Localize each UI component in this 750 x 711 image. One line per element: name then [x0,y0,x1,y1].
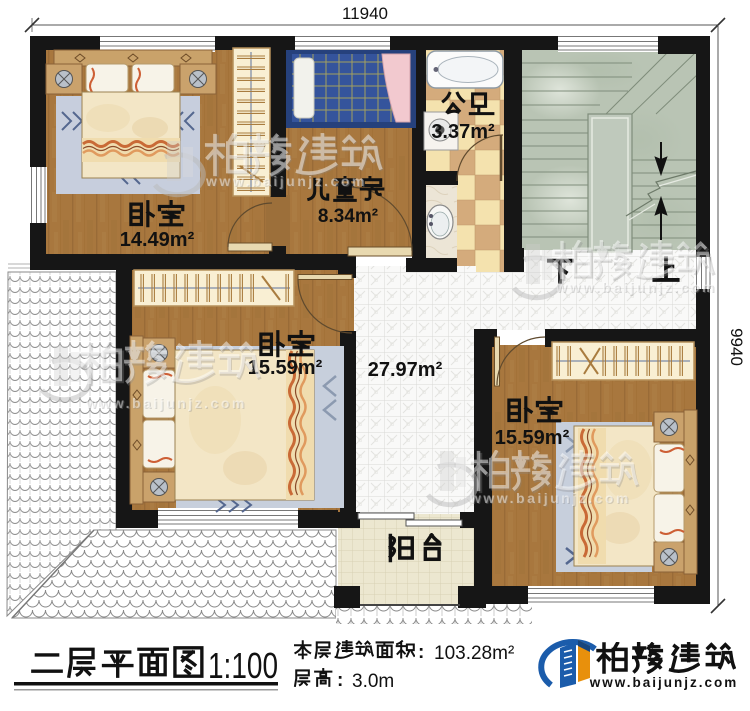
svg-text::: : [337,670,343,691]
svg-text:3.0m: 3.0m [352,671,394,692]
svg-text:15.59m²: 15.59m² [495,427,570,449]
svg-text:1:100: 1:100 [208,645,278,686]
svg-text:27.97m²: 27.97m² [368,359,443,381]
svg-text::: : [418,642,424,663]
svg-text:103.28m²: 103.28m² [434,643,514,664]
svg-text:www.baijunjz.com: www.baijunjz.com [85,395,247,411]
svg-text:8.34m²: 8.34m² [318,206,378,227]
svg-text:3.37m²: 3.37m² [431,121,495,143]
svg-text:www.baijunjz.com: www.baijunjz.com [469,490,631,506]
svg-text:www.baijunjz.com: www.baijunjz.com [555,279,717,295]
svg-text:14.49m²: 14.49m² [120,229,195,251]
svg-text:www.baijunjz.com: www.baijunjz.com [589,675,739,690]
svg-text:www.baijunjz.com: www.baijunjz.com [205,173,367,189]
svg-text:9940: 9940 [727,328,746,366]
svg-text:11940: 11940 [342,4,388,23]
